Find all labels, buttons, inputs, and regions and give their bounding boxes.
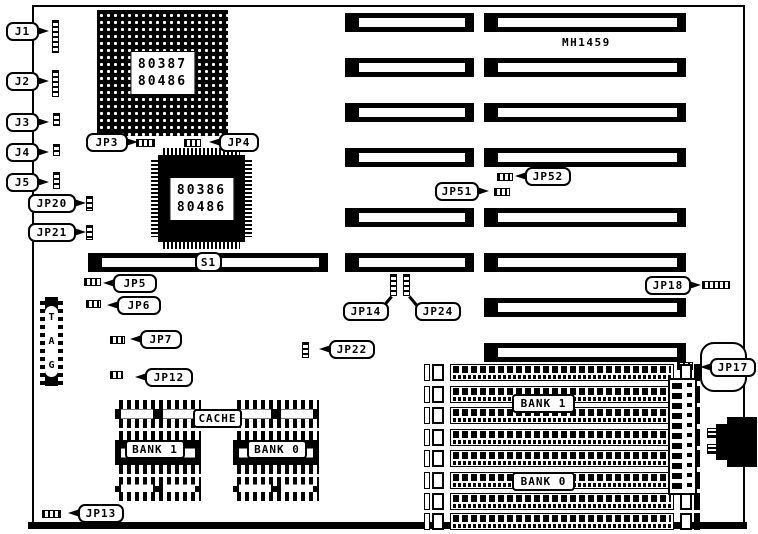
- jp52-jumper: [497, 173, 513, 181]
- tag-letter: G: [48, 360, 54, 371]
- jp22-jumper: [302, 342, 309, 358]
- jp24-jumper: [403, 274, 410, 296]
- fpu-socket-label: 80387 80486: [130, 51, 195, 95]
- jp4-jumper: [184, 139, 201, 147]
- power-pins-right: [687, 383, 692, 490]
- isa-slot: [484, 208, 686, 227]
- callout-jp20: JP20: [28, 194, 76, 213]
- cache-dip-block: [115, 400, 201, 428]
- jp20-jumper: [86, 196, 93, 211]
- fpu-line1: 80387: [138, 56, 187, 73]
- callout-jp13: JP13: [78, 504, 124, 523]
- j3-header: [53, 113, 60, 126]
- jp12-jumper: [110, 371, 123, 379]
- power-connector: [668, 378, 697, 495]
- tag-pins-right: [58, 297, 63, 386]
- callout-jp51: JP51: [435, 182, 479, 201]
- callout-s1: S1: [195, 252, 222, 272]
- jp21-jumper: [86, 225, 93, 240]
- cache-dip-block: [233, 400, 319, 428]
- keyboard-connector: [727, 417, 757, 467]
- cache-title: CACHE: [193, 409, 242, 428]
- j1-header: [52, 20, 59, 53]
- simm-socket: [424, 429, 700, 446]
- callout-j4: J4: [6, 143, 39, 162]
- isa-slot: [345, 253, 474, 272]
- callout-jp7: JP7: [140, 330, 182, 349]
- cpu-line1: 80386: [177, 182, 226, 199]
- cache-dip-block: [233, 477, 319, 501]
- callout-jp18: JP18: [645, 276, 691, 295]
- isa-slot: [345, 103, 474, 122]
- cpu-line2: 80486: [177, 199, 226, 216]
- isa-slot: [484, 253, 686, 272]
- callout-jp24: JP24: [415, 302, 461, 321]
- cache-bank1-label: BANK 1: [125, 440, 185, 459]
- tag-letter: T: [48, 312, 54, 323]
- isa-slot: [345, 208, 474, 227]
- cpu-pins-bottom: [163, 242, 240, 249]
- callout-jp12: JP12: [145, 368, 193, 387]
- simm-socket: [424, 513, 700, 530]
- isa-slot: [484, 103, 686, 122]
- j4-header: [53, 144, 60, 156]
- isa-slot: [484, 58, 686, 77]
- keyboard-connector-pin: [707, 444, 717, 454]
- callout-jp21: JP21: [28, 223, 76, 242]
- callout-jp3: JP3: [86, 133, 128, 152]
- isa-slot: [345, 58, 474, 77]
- callout-j1: J1: [6, 22, 39, 41]
- isa-slot: [484, 343, 686, 362]
- jp13-jumper: [42, 510, 61, 518]
- cache-dip-block: [115, 477, 201, 501]
- jp5-jumper: [84, 278, 101, 286]
- callout-jp17: JP17: [710, 358, 756, 377]
- callout-jp14: JP14: [343, 302, 389, 321]
- cpu-pins-right: [245, 160, 252, 237]
- callout-j2: J2: [6, 72, 39, 91]
- jp7-jumper: [110, 336, 125, 344]
- simm-socket: [424, 450, 700, 467]
- power-pins-left: [672, 383, 682, 490]
- cpu-chip: 80386 80486: [151, 148, 252, 249]
- jp14-jumper: [390, 274, 397, 296]
- isa-slot: [484, 298, 686, 317]
- cpu-pins-left: [151, 160, 158, 237]
- j5-header: [53, 172, 60, 189]
- tag-letter: A: [48, 336, 54, 347]
- isa-slot: [345, 13, 474, 32]
- j2-header: [52, 70, 59, 97]
- cache-bank0-label: BANK 0: [247, 440, 307, 459]
- jp3-jumper: [136, 139, 155, 147]
- cpu-chip-label: 80386 80486: [169, 177, 234, 221]
- simm-socket: [424, 493, 700, 510]
- callout-j5: J5: [6, 173, 39, 192]
- fpu-line2: 80486: [138, 73, 187, 90]
- keyboard-connector-step: [716, 424, 729, 460]
- callout-jp5: JP5: [113, 274, 157, 293]
- jp6-jumper: [86, 300, 101, 308]
- callout-j3: J3: [6, 113, 39, 132]
- simm-socket: [424, 364, 700, 381]
- motherboard-diagram: { "diagram": { "model": "MH1459", "color…: [0, 0, 758, 534]
- callout-jp52: JP52: [525, 167, 571, 186]
- simm-bank0-label: BANK 0: [512, 472, 575, 491]
- isa-slot: [484, 13, 686, 32]
- model-number: MH1459: [562, 36, 611, 49]
- callout-jp22: JP22: [329, 340, 375, 359]
- callout-jp6: JP6: [117, 296, 161, 315]
- jp18-jumper: [702, 281, 730, 289]
- tag-sram-socket: T A G: [40, 297, 63, 386]
- tag-label: T A G: [45, 306, 58, 377]
- fpu-socket: 80387 80486: [97, 10, 228, 136]
- keyboard-connector-pin: [707, 428, 717, 438]
- callout-jp4: JP4: [219, 133, 259, 152]
- jp51-jumper: [494, 188, 510, 196]
- simm-bank1-label: BANK 1: [512, 394, 575, 413]
- isa-slot: [345, 148, 474, 167]
- isa-slot: [484, 148, 686, 167]
